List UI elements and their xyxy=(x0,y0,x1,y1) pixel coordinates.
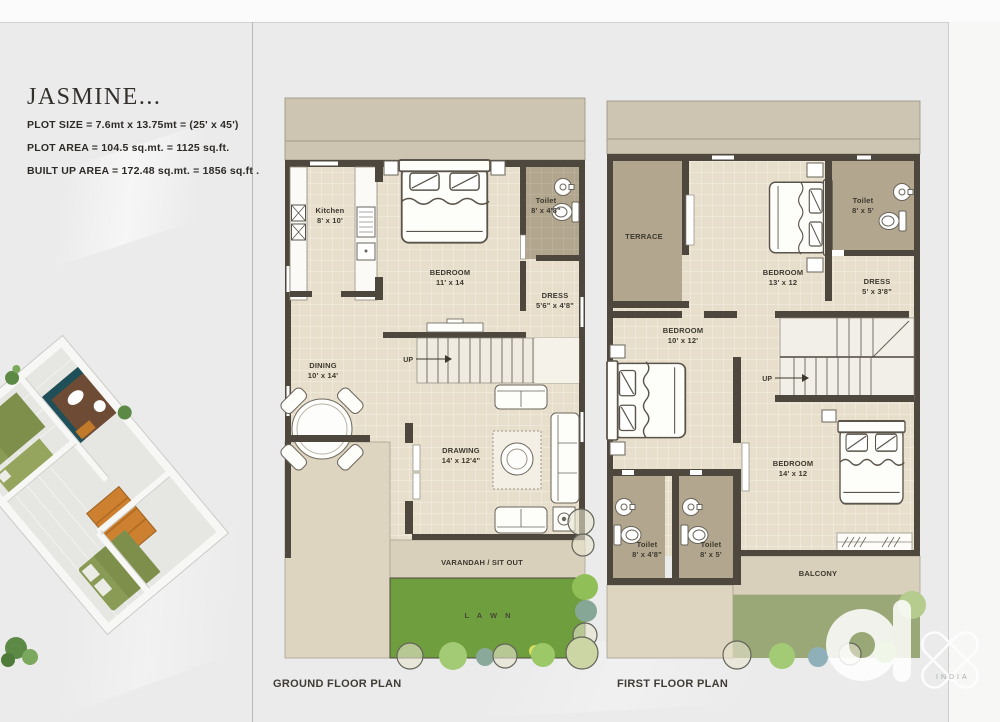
ground-floor-plan-title: GROUND FLOOR PLAN xyxy=(273,678,402,690)
window-sill xyxy=(837,533,912,551)
room-name: BEDROOM xyxy=(663,326,704,336)
bedside-table xyxy=(384,161,398,175)
room-label-gf-dress: DRESS 5'6" x 4'8" xyxy=(536,291,574,311)
room-label-varandah: VARANDAH / SIT OUT xyxy=(441,558,523,568)
room-label-gf-toilet: Toilet 8' x 4'8" xyxy=(531,196,561,216)
first-floor-plan: UP xyxy=(607,101,926,669)
toilet-door xyxy=(521,235,526,259)
room-dims: 8' x 4'8" xyxy=(632,550,662,560)
bedside-table xyxy=(610,345,625,358)
dining-table xyxy=(279,386,365,472)
staircase: UP xyxy=(762,318,914,402)
room-dims: 8' x 4'8" xyxy=(531,206,561,216)
rear-setback-band xyxy=(607,101,920,154)
wc-icon xyxy=(879,211,906,231)
entrance-door xyxy=(413,473,420,499)
room-label-gf-bedroom: BEDROOM 11' x 14 xyxy=(430,268,471,288)
ground-floor-plan: UP xyxy=(279,98,598,670)
room-name: DRAWING xyxy=(442,446,480,456)
room-label-ff-dress: DRESS 5' x 3'8" xyxy=(862,277,892,297)
room-dims: 5'6" x 4'8" xyxy=(536,301,574,311)
bedside-table xyxy=(807,258,823,272)
room-name: Toilet xyxy=(637,540,658,550)
room-dims: 8' x 5' xyxy=(852,206,874,216)
up-label: UP xyxy=(403,357,413,364)
bedroom-door xyxy=(742,443,749,491)
room-label-kitchen: Kitchen 8' x 10' xyxy=(316,206,345,226)
first-floor-plan-title: FIRST FLOOR PLAN xyxy=(617,678,728,690)
room-label-ff-bedroom1: BEDROOM 13' x 12 xyxy=(763,268,804,288)
porch-area xyxy=(285,442,390,658)
room-label-ff-bedroom2: BEDROOM 10' x 12' xyxy=(663,326,704,346)
room-name: TERRACE xyxy=(625,232,663,242)
fridge-icon xyxy=(357,207,375,260)
room-dims: 11' x 14 xyxy=(436,278,464,288)
double-bed xyxy=(399,160,490,243)
room-name: Toilet xyxy=(536,196,557,206)
room-label-dining: DINING 10' x 14' xyxy=(308,361,338,381)
bedside-table xyxy=(807,163,823,177)
room-label-terrace: TERRACE xyxy=(625,232,663,242)
room-name: Toilet xyxy=(701,540,722,550)
rear-setback-band xyxy=(285,98,585,160)
room-label-ff-bedroom3: BEDROOM 14' x 12 xyxy=(773,459,814,479)
room-dims: 13' x 12 xyxy=(769,278,797,288)
watermark-region-label: INDIA xyxy=(936,674,970,681)
room-dims: 8' x 5' xyxy=(700,550,722,560)
room-label-ff-toilet2: Toilet 8' x 4'8" xyxy=(632,540,662,560)
double-bed xyxy=(838,421,905,504)
room-dims: 8' x 10' xyxy=(317,216,343,226)
room-name: BEDROOM xyxy=(430,268,471,278)
room-name: VARANDAH / SIT OUT xyxy=(441,558,523,568)
room-name: DRESS xyxy=(542,291,569,301)
room-name: Kitchen xyxy=(316,206,345,216)
room-label-lawn: L A W N xyxy=(464,611,513,621)
room-name: BEDROOM xyxy=(773,459,814,469)
floorplan-poster: JASMINE... PLOT SIZE = 7.6mt x 13.75mt =… xyxy=(0,0,1000,722)
bedside-table xyxy=(491,161,505,175)
room-dims: 10' x 12' xyxy=(668,336,698,346)
palm-plant-icon xyxy=(1,637,38,667)
room-dims: 5' x 3'8" xyxy=(862,287,892,297)
staircase: UP xyxy=(403,338,579,383)
room-name: DRESS xyxy=(864,277,891,287)
room-label-ff-toilet1: Toilet 8' x 5' xyxy=(852,196,874,216)
room-dims: 14' x 12'4" xyxy=(442,456,481,466)
room-label-ff-toilet3: Toilet 8' x 5' xyxy=(700,540,722,560)
room-name: L A W N xyxy=(464,611,513,621)
up-label: UP xyxy=(762,376,772,383)
terrace-door xyxy=(686,195,694,245)
center-rug xyxy=(493,431,541,489)
tv-console xyxy=(427,323,483,332)
room-dims: 10' x 14' xyxy=(308,371,338,381)
room-name: BALCONY xyxy=(799,569,837,579)
bedside-table xyxy=(822,410,836,422)
room-name: BEDROOM xyxy=(763,268,804,278)
room-dims: 14' x 12 xyxy=(779,469,807,479)
room-name: Toilet xyxy=(853,196,874,206)
double-bed xyxy=(770,180,832,255)
room-name: DINING xyxy=(309,361,336,371)
bedside-table xyxy=(610,442,625,455)
isometric-house-render xyxy=(0,324,232,636)
room-label-balcony: BALCONY xyxy=(799,569,837,579)
entrance-door xyxy=(413,445,420,471)
double-bed xyxy=(607,361,685,440)
room-label-drawing: DRAWING 14' x 12'4" xyxy=(442,446,481,466)
